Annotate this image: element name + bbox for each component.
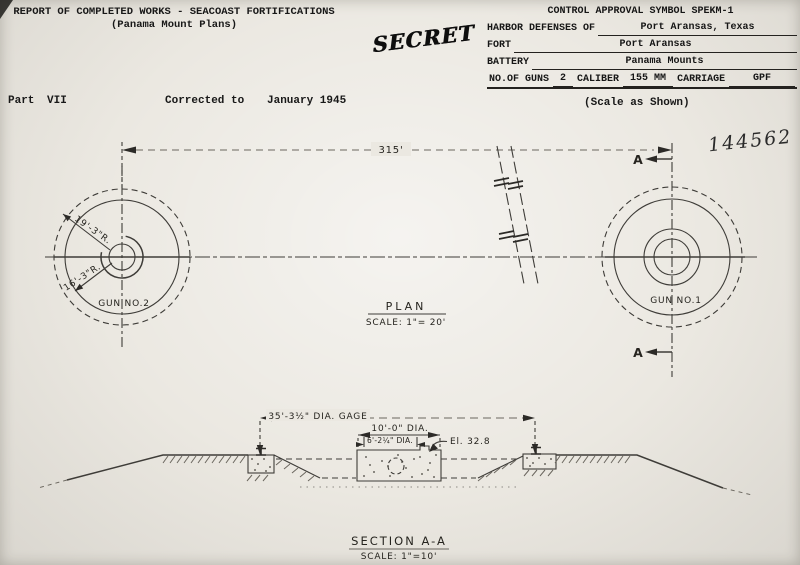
- gun1-label: GUN NO.1: [650, 296, 702, 306]
- gun2-emplacement: 19'-3"R. 16'-3"R. GUN NO.2: [54, 166, 190, 350]
- pintle-dimension-label: 6'-2¼" DIA.: [367, 436, 413, 445]
- scan-corner-artifact: [0, 0, 13, 19]
- elevation-label: El. 32.8: [450, 437, 490, 447]
- document-page: REPORT OF COMPLETED WORKS - SEACOAST FOR…: [0, 0, 800, 565]
- gun2-inner-radius-label: 16'-3"R.: [62, 262, 103, 293]
- gun2-label: GUN NO.2: [98, 299, 150, 309]
- span-dimension: 315': [122, 142, 672, 188]
- section-dimensions: 35'-3½" DIA. GAGE 10'-0" DIA. 6'-2¼" DIA…: [257, 409, 538, 455]
- section-scale: SCALE: 1"=10': [361, 552, 437, 562]
- plan-title-block: PLAN SCALE: 1"= 20': [366, 300, 446, 328]
- gage-dimension-label: 35'-3½" DIA. GAGE: [268, 412, 367, 422]
- section-cut-markers: A A: [633, 152, 672, 360]
- base-dimension-label: 10'-0" DIA.: [371, 424, 428, 434]
- section-marker-bottom: A: [633, 345, 643, 360]
- section-title-block: SECTION A-A SCALE: 1"=10': [349, 534, 449, 562]
- road-break-lines: [494, 146, 538, 284]
- plan-and-section-drawing: 19'-3"R. 16'-3"R. GUN NO.2 GUN NO.1 315'…: [0, 0, 800, 565]
- span-dimension-value: 315': [378, 145, 403, 156]
- gun2-outer-radius-label: 19'-3"R.: [72, 214, 112, 246]
- plan-scale: SCALE: 1"= 20': [366, 318, 446, 328]
- section-marker-top: A: [633, 152, 643, 167]
- gun1-emplacement: GUN NO.1: [602, 143, 742, 377]
- section-title: SECTION A-A: [351, 534, 447, 548]
- plan-title: PLAN: [386, 300, 427, 313]
- section-terrain: [38, 446, 752, 495]
